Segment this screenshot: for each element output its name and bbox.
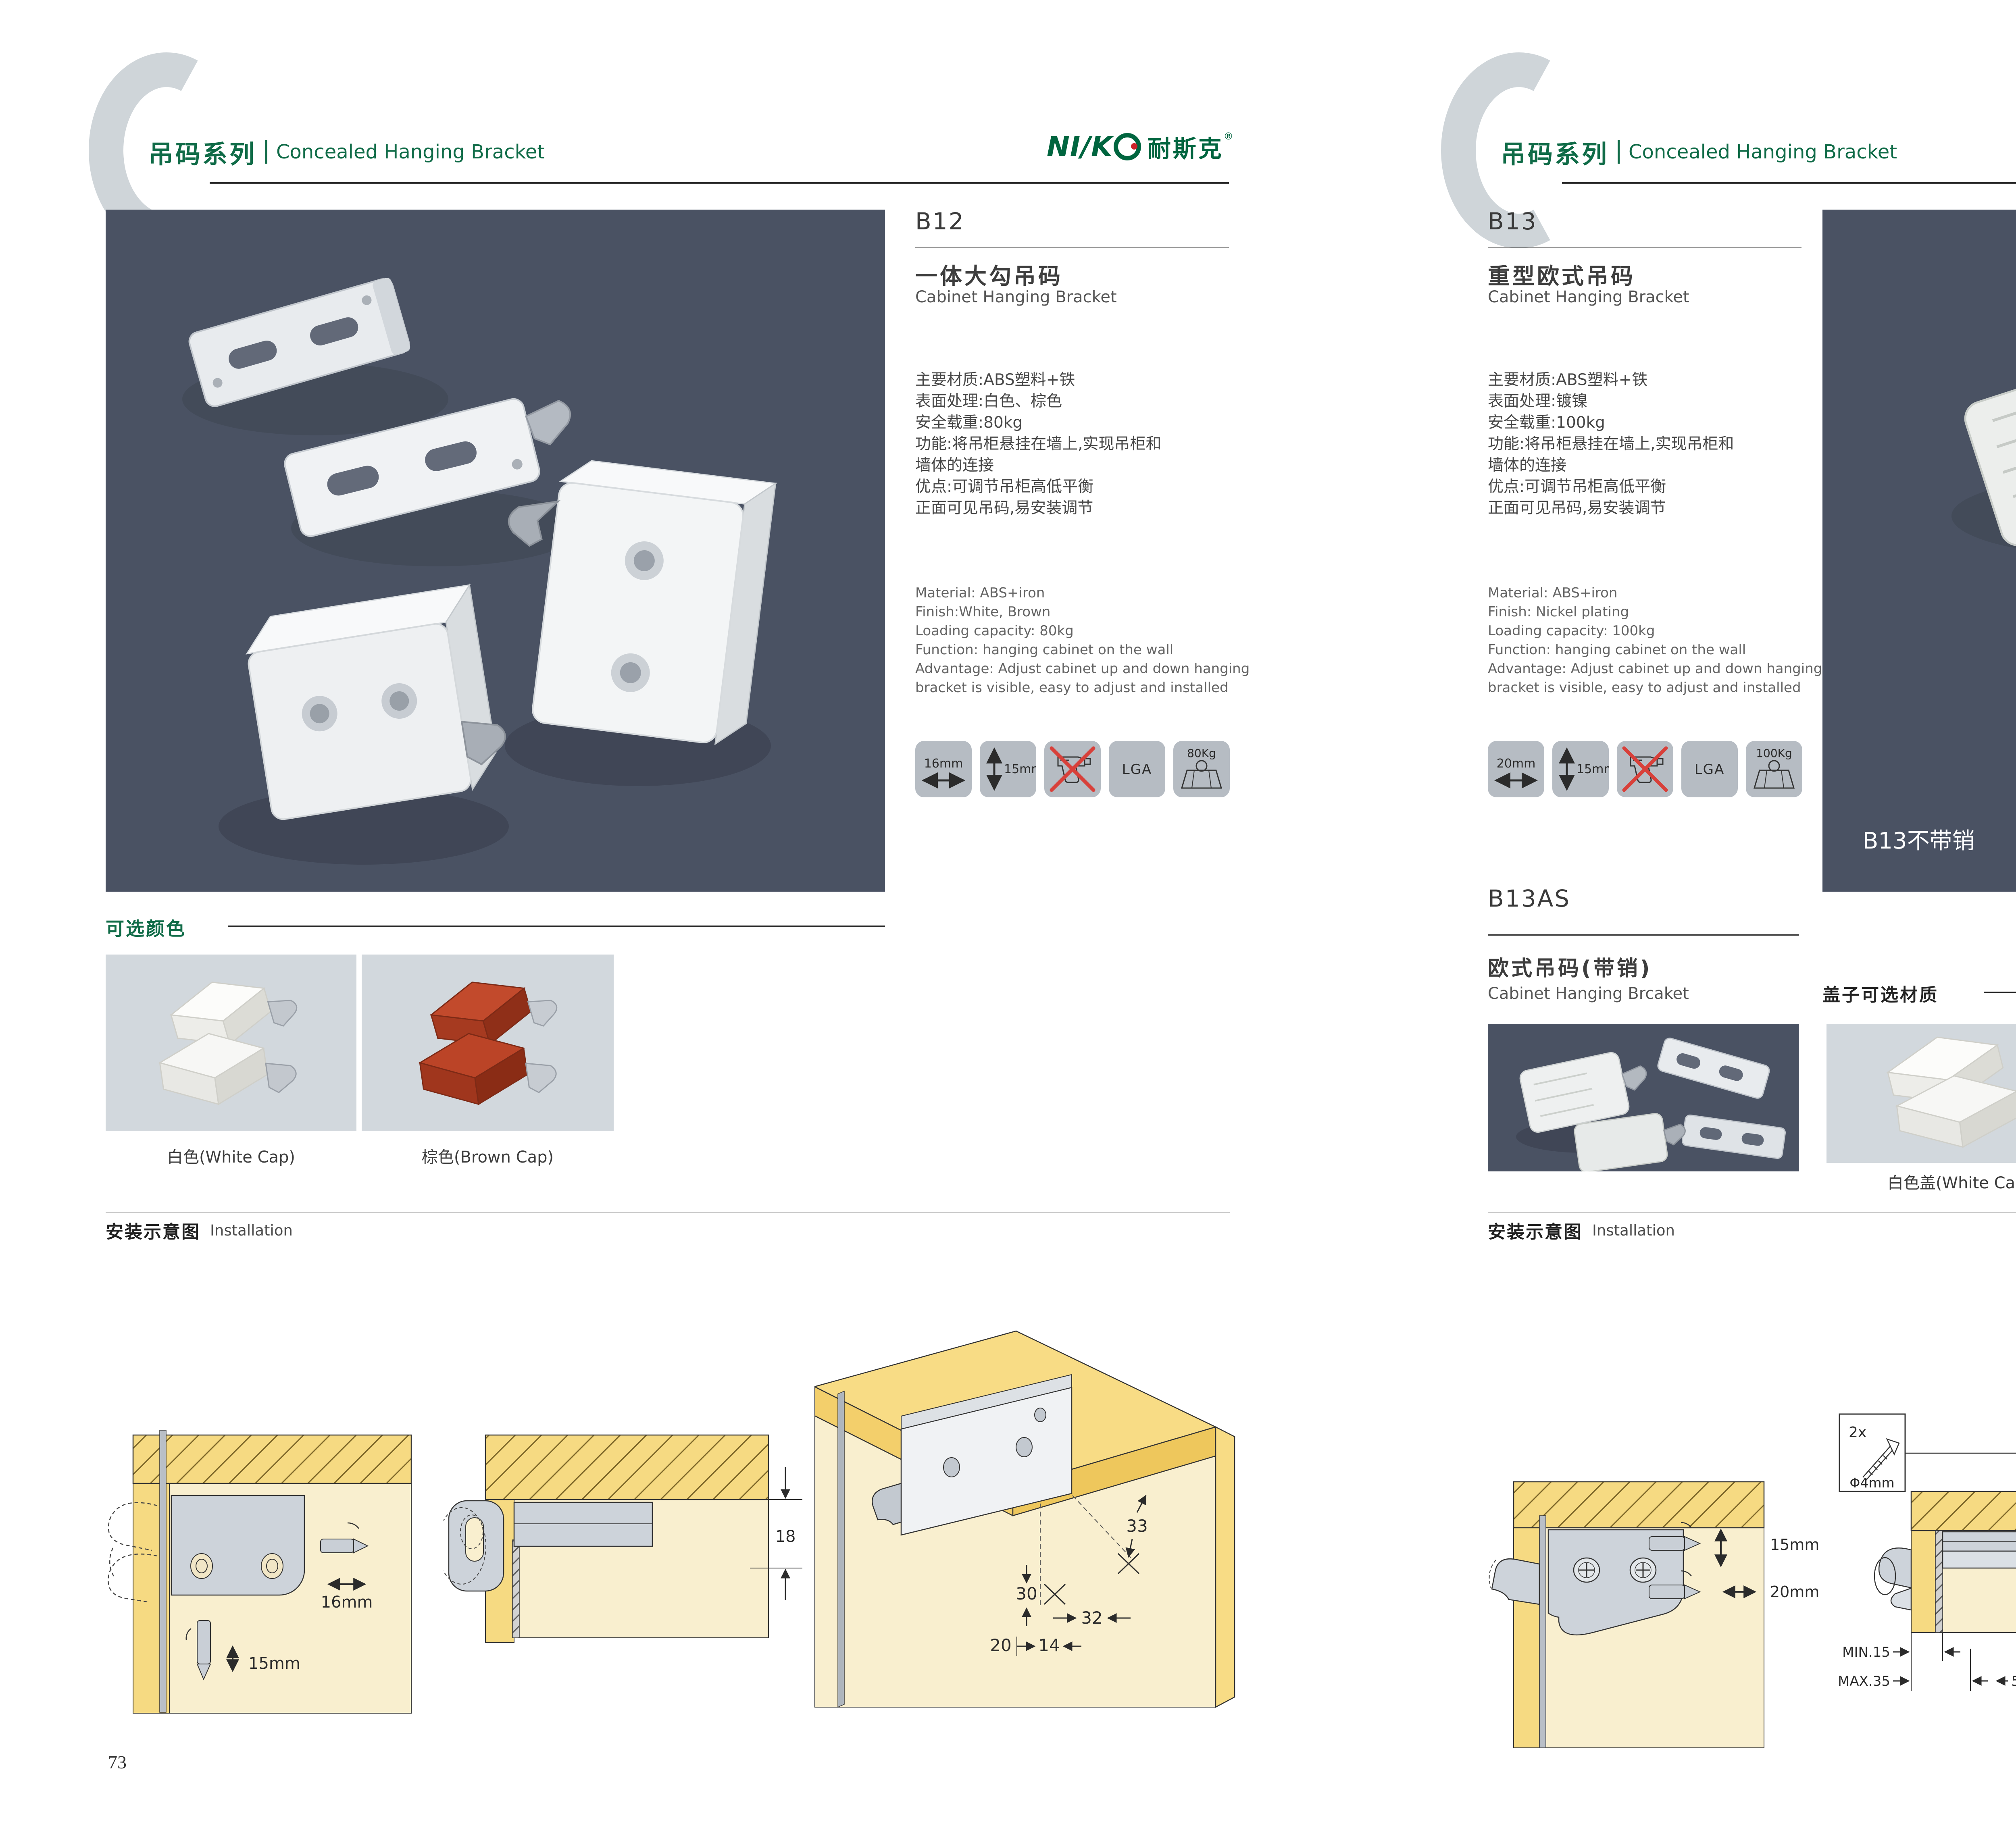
svg-text:15mm: 15mm <box>248 1654 300 1673</box>
drill-width-icon: 20mm <box>1488 741 1544 797</box>
load-capacity-icon: 80Kg <box>1173 741 1230 797</box>
svg-text:15mm: 15mm <box>1004 762 1036 776</box>
spec-line: 主要材质:ABS塑料+铁 <box>915 369 1162 391</box>
spec-line: 正面可见吊码,易安装调节 <box>915 497 1162 519</box>
phillips-screw <box>1630 1558 1656 1582</box>
spec-line: 安全载重:100kg <box>1488 412 1734 433</box>
header-rule-right <box>1562 182 2016 184</box>
svg-text:18: 18 <box>775 1527 796 1546</box>
svg-text:15mm: 15mm <box>1770 1536 1818 1554</box>
photo-caption: B13不带销 <box>1863 828 1975 854</box>
load-capacity-icon: 100Kg <box>1746 741 1802 797</box>
drill-depth-icon: 15mm <box>980 741 1036 797</box>
no-drill-icon <box>1617 741 1673 797</box>
spec-line: Advantage: Adjust cabinet up and down ha… <box>915 659 1250 678</box>
specs-en-block: Material: ABS+iron Finish: Nickel platin… <box>1488 584 1822 697</box>
installation-header: 安装示意图 Installation <box>1488 1217 1675 1243</box>
spec-line: bracket is visible, easy to adjust and i… <box>1488 678 1822 697</box>
spec-line: Loading capacity: 80kg <box>915 622 1250 641</box>
svg-text:Φ4mm: Φ4mm <box>1849 1475 1894 1491</box>
spec-line: Finish:White, Brown <box>915 603 1250 622</box>
spec-line: 正面可见吊码,易安装调节 <box>1488 497 1734 519</box>
color-options-title: 可选颜色 <box>106 914 186 941</box>
lga-cert-icon: LGA <box>1109 741 1165 797</box>
screw-pack-box: 2x Φ4mm <box>1839 1414 1905 1491</box>
series-header-right: 吊码系列 Concealed Hanging Bracket <box>1501 134 1897 170</box>
install-diagram-rail-b13: 2x Φ4mm 18 MIN.15 <box>1831 1399 2016 1705</box>
install-diagram-plate-b12: 18 <box>444 1427 810 1645</box>
svg-text:2x: 2x <box>1849 1424 1866 1441</box>
color-options-rule <box>228 926 885 927</box>
variant-title-en: Cabinet Hanging Brcaket <box>1488 984 1689 1003</box>
color-option-photo-brown <box>362 955 614 1131</box>
svg-text:20: 20 <box>990 1635 1011 1655</box>
bracket-body-illustration <box>242 583 512 821</box>
series-title-zh: 吊码系列 <box>1501 134 1609 170</box>
product-code: B13 <box>1488 208 1537 235</box>
svg-text:80Kg: 80Kg <box>1187 747 1216 760</box>
svg-text:33: 33 <box>1126 1516 1148 1536</box>
spec-line: Advantage: Adjust cabinet up and down ha… <box>1488 659 1822 678</box>
installation-title-en: Installation <box>210 1222 293 1239</box>
spec-line: 墙体的连接 <box>915 455 1162 476</box>
spec-line: Loading capacity: 100kg <box>1488 622 1822 641</box>
svg-text:58: 58 <box>2011 1673 2016 1689</box>
drill-width-icon: 16mm <box>915 741 972 797</box>
installation-title-en: Installation <box>1592 1222 1675 1239</box>
variant-code: B13AS <box>1488 885 1570 912</box>
spec-line: 墙体的连接 <box>1488 455 1734 476</box>
phillips-screw <box>1574 1558 1599 1582</box>
series-divider-bar <box>265 140 267 164</box>
spec-line: 优点:可调节吊柜高低平衡 <box>1488 476 1734 497</box>
no-drill-icon <box>1044 741 1101 797</box>
cap-photo-white <box>1826 1024 2016 1163</box>
color-label-brown: 棕色(Brown Cap) <box>362 1144 614 1167</box>
install-diagram-iso-b12: 33 30 32 20 14 <box>814 1326 1238 1725</box>
logo-text-k: K <box>1091 131 1113 163</box>
installation-header: 安装示意图 Installation <box>106 1217 293 1243</box>
product-title-zh: 一体大勾吊码 <box>915 258 1063 290</box>
install-diagram-section-b12: 16mm 15mm <box>101 1427 448 1721</box>
spec-line: bracket is visible, easy to adjust and i… <box>915 678 1250 697</box>
install-diagram-section-b13: 15mm 20mm <box>1460 1467 1818 1749</box>
specs-en-block: Material: ABS+iron Finish:White, Brown L… <box>915 584 1250 697</box>
logo-slash: ∕ <box>1081 131 1091 163</box>
svg-text:MIN.15: MIN.15 <box>1842 1644 1890 1660</box>
spec-line: Function: hanging cabinet on the wall <box>915 641 1250 659</box>
logo-text: NI <box>1047 131 1081 163</box>
wall-hook <box>1874 1548 1911 1610</box>
lga-cert-icon: LGA <box>1681 741 1738 797</box>
header-rule-left <box>210 182 1229 184</box>
spec-line: 功能:将吊柜悬挂在墙上,实现吊柜和 <box>1488 433 1734 455</box>
spec-line: Material: ABS+iron <box>915 584 1250 603</box>
installation-title-zh: 安装示意图 <box>1488 1217 1583 1243</box>
installation-title-zh: 安装示意图 <box>106 1217 200 1243</box>
svg-text:MAX.35: MAX.35 <box>1838 1673 1890 1689</box>
product-title-zh: 重型欧式吊码 <box>1488 258 1635 290</box>
product-photo-b12 <box>106 210 885 892</box>
series-title-en: Concealed Hanging Bracket <box>276 141 545 163</box>
catalog-spread: { "brand": { "logo_latin_1": "NI", "logo… <box>0 0 2016 1847</box>
logo-o-icon <box>1114 133 1141 160</box>
logo-chinese: 耐斯克 <box>1148 130 1224 164</box>
logo-red-dot-icon <box>1131 143 1137 150</box>
product-photo-b13: B13不带销 <box>1822 210 2016 892</box>
rail-profile <box>1943 1532 2016 1568</box>
spec-line: Finish: Nickel plating <box>1488 603 1822 622</box>
variant-underline <box>1488 934 1799 936</box>
series-title-zh: 吊码系列 <box>148 134 256 170</box>
spec-line: 表面处理:白色、棕色 <box>915 391 1162 412</box>
svg-text:32: 32 <box>1081 1608 1102 1628</box>
spec-icon-row: 20mm 15mm LGA 100Kg <box>1488 741 1802 797</box>
product-title-en: Cabinet Hanging Bracket <box>915 288 1117 306</box>
svg-text:LGA: LGA <box>1695 761 1725 778</box>
spec-line: Function: hanging cabinet on the wall <box>1488 641 1822 659</box>
series-divider-bar <box>1618 140 1620 164</box>
section-divider <box>106 1212 1230 1213</box>
code-underline <box>1488 247 1801 248</box>
section-divider <box>1488 1212 2016 1213</box>
spec-line: 主要材质:ABS塑料+铁 <box>1488 369 1734 391</box>
svg-text:30: 30 <box>1016 1584 1037 1604</box>
series-title-en: Concealed Hanging Bracket <box>1629 141 1897 163</box>
spec-icon-row: 16mm 15mm LGA 80Kg <box>915 741 1230 797</box>
svg-text:LGA: LGA <box>1122 761 1152 778</box>
variant-title-zh: 欧式吊码(带销) <box>1488 951 1652 982</box>
series-header-left: 吊码系列 Concealed Hanging Bracket <box>148 134 545 170</box>
svg-text:15mm: 15mm <box>1577 762 1609 776</box>
page-number-left: 73 <box>108 1751 127 1773</box>
spec-line: 安全载重:80kg <box>915 412 1162 433</box>
color-option-photo-white <box>106 955 356 1131</box>
specs-zh-block: 主要材质:ABS塑料+铁 表面处理:镀镍 安全载重:100kg 功能:将吊柜悬挂… <box>1488 369 1734 519</box>
caps-options-title: 盖子可选材质 <box>1822 980 1939 1006</box>
svg-text:100Kg: 100Kg <box>1756 747 1792 760</box>
color-label-white: 白色(White Cap) <box>106 1144 356 1167</box>
spec-line: 优点:可调节吊柜高低平衡 <box>915 476 1162 497</box>
specs-zh-block: 主要材质:ABS塑料+铁 表面处理:白色、棕色 安全载重:80kg 功能:将吊柜… <box>915 369 1162 519</box>
keyhole-plate <box>444 1501 504 1591</box>
code-underline <box>915 247 1229 248</box>
brand-logo-left: NI ∕ K 耐斯克 ® <box>1047 130 1233 164</box>
spec-line: 功能:将吊柜悬挂在墙上,实现吊柜和 <box>915 433 1162 455</box>
caps-options-rule <box>1984 992 2016 993</box>
product-title-en: Cabinet Hanging Bracket <box>1488 288 1689 306</box>
registered-mark: ® <box>1224 131 1233 142</box>
drill-depth-icon: 15mm <box>1552 741 1609 797</box>
product-code: B12 <box>915 208 965 235</box>
svg-text:16mm: 16mm <box>321 1593 373 1612</box>
cap-label-white: 白色盖(White Cap) <box>1826 1170 2016 1193</box>
spec-line: 表面处理:镀镍 <box>1488 391 1734 412</box>
svg-text:20mm: 20mm <box>1770 1583 1818 1601</box>
product-photo-b13as <box>1488 1024 1799 1171</box>
svg-text:16mm: 16mm <box>924 757 963 771</box>
wall-hook <box>1489 1559 1539 1604</box>
svg-text:14: 14 <box>1038 1635 1060 1655</box>
svg-text:20mm: 20mm <box>1497 757 1536 771</box>
spec-line: Material: ABS+iron <box>1488 584 1822 603</box>
